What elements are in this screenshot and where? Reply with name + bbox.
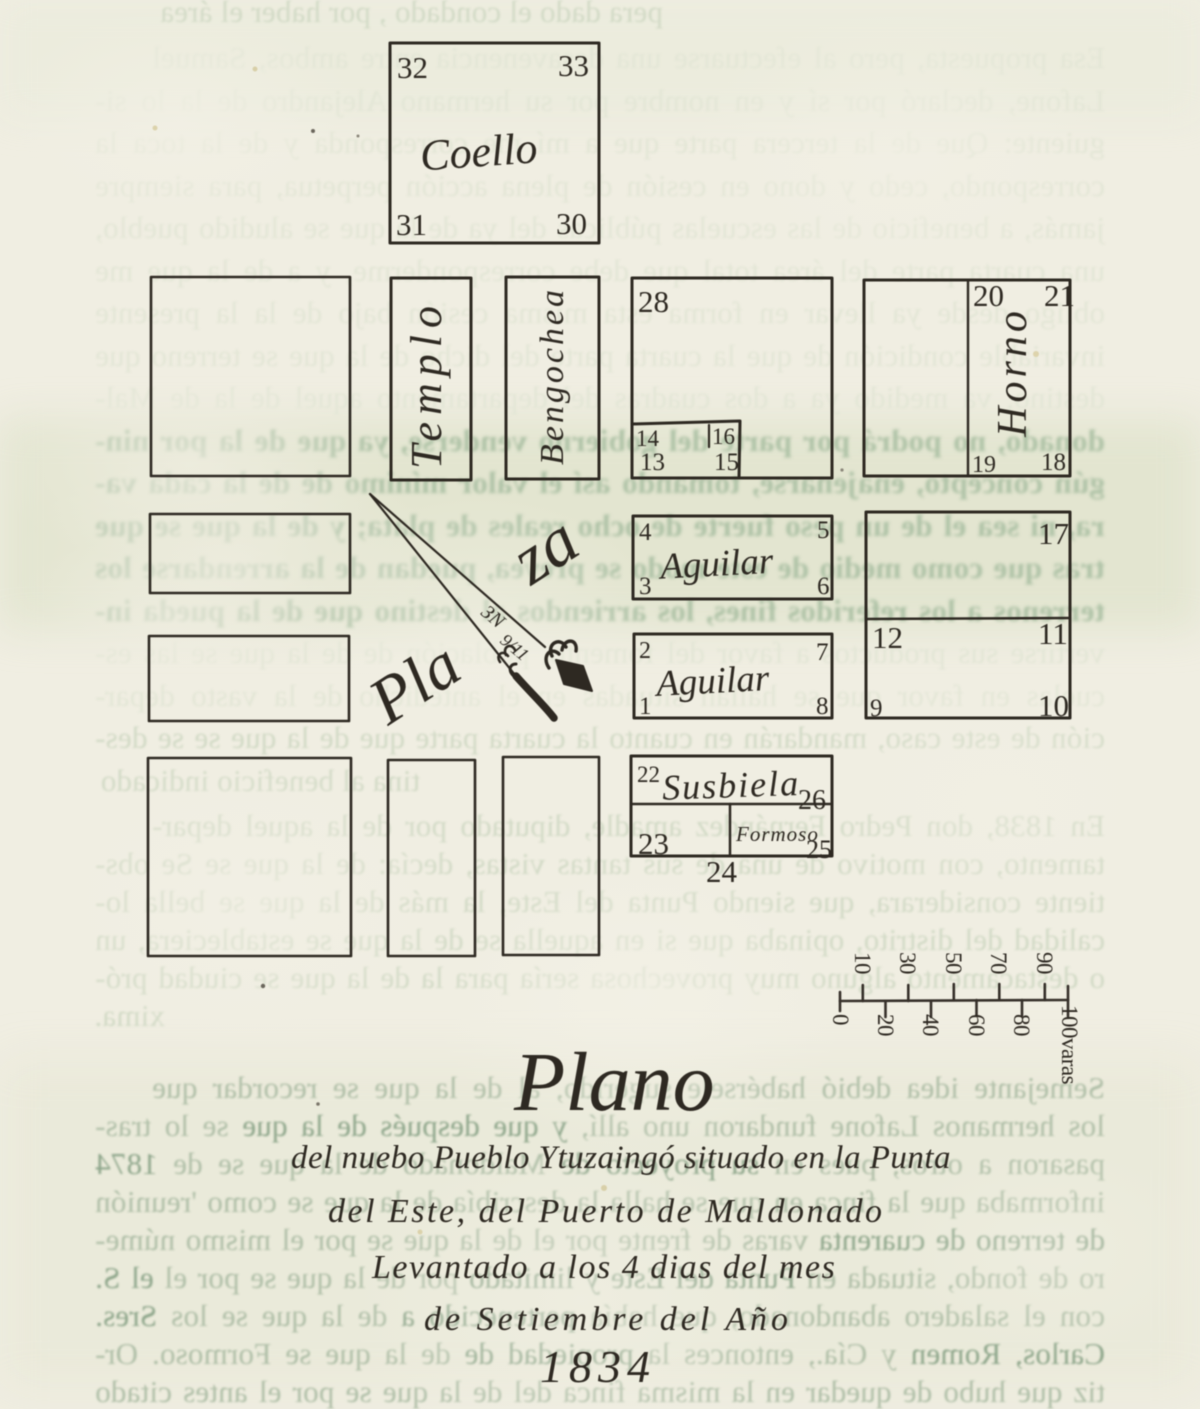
- svg-text:ЗN: ЗN: [477, 601, 510, 634]
- svg-text:Aguilar: Aguilar: [656, 541, 775, 588]
- svg-text:Aguilar: Aguilar: [652, 658, 771, 705]
- svg-text:de Setiembre del Año: de Setiembre del Año: [424, 1301, 792, 1338]
- svg-text:22: 22: [637, 762, 660, 787]
- svg-text:15: 15: [714, 449, 739, 476]
- svg-text:80: 80: [1009, 1014, 1034, 1036]
- svg-text:17: 17: [1038, 516, 1069, 551]
- svg-text:26: 26: [798, 785, 826, 816]
- svg-text:11: 11: [1038, 616, 1068, 651]
- svg-text:1: 1: [639, 693, 652, 720]
- svg-text:10: 10: [1038, 688, 1069, 723]
- svg-text:31: 31: [396, 207, 427, 242]
- svg-text:28: 28: [638, 284, 669, 319]
- svg-text:3: 3: [639, 573, 652, 600]
- svg-text:2: 2: [639, 638, 651, 664]
- svg-text:5: 5: [817, 517, 830, 544]
- svg-text:Horno: Horno: [990, 307, 1036, 438]
- svg-text:19: 19: [972, 452, 996, 478]
- svg-text:4: 4: [639, 519, 652, 546]
- svg-text:Levantado a los 4 dias del mes: Levantado a los 4 dias del mes: [371, 1249, 836, 1286]
- svg-text:del nuebo Pueblo Ytuzaingó sit: del nuebo Pueblo Ytuzaingó situado en la…: [291, 1140, 951, 1176]
- svg-text:Coello: Coello: [418, 123, 538, 180]
- svg-text:50: 50: [941, 952, 966, 974]
- svg-text:40: 40: [918, 1014, 943, 1036]
- svg-text:60: 60: [964, 1014, 989, 1036]
- svg-text:33: 33: [558, 48, 589, 83]
- svg-text:21: 21: [1044, 278, 1075, 313]
- svg-text:13: 13: [640, 449, 665, 476]
- svg-text:0: 0: [828, 1014, 853, 1025]
- svg-text:24: 24: [706, 854, 738, 889]
- svg-text:Bengochea: Bengochea: [534, 287, 571, 465]
- svg-text:Formoso: Formoso: [735, 822, 819, 846]
- svg-text:16: 16: [712, 424, 735, 449]
- svg-text:32: 32: [397, 50, 428, 85]
- svg-text:23: 23: [638, 826, 669, 861]
- svg-text:100varas: 100varas: [1057, 1005, 1082, 1085]
- svg-text:20: 20: [873, 1014, 898, 1036]
- svg-text:Susbiela: Susbiela: [661, 763, 800, 808]
- svg-text:1834: 1834: [540, 1341, 656, 1392]
- svg-text:9: 9: [870, 695, 883, 722]
- svg-text:18: 18: [1041, 449, 1066, 476]
- svg-text:90: 90: [1032, 952, 1057, 974]
- svg-text:12: 12: [872, 620, 903, 655]
- svg-text:70: 70: [986, 952, 1011, 974]
- svg-text:8: 8: [816, 693, 829, 720]
- svg-text:za: za: [497, 501, 592, 600]
- svg-text:Plano: Plano: [513, 1036, 715, 1129]
- svg-text:del Este, del Puerto de Maldon: del Este, del Puerto de Maldonado: [328, 1193, 885, 1230]
- svg-text:30: 30: [556, 206, 587, 241]
- svg-text:Templo: Templo: [402, 299, 451, 469]
- svg-text:10: 10: [850, 952, 875, 974]
- svg-text:30: 30: [895, 952, 920, 974]
- svg-text:Pla: Pla: [356, 627, 473, 739]
- svg-text:14: 14: [636, 426, 660, 451]
- svg-text:6: 6: [817, 573, 830, 600]
- svg-text:7: 7: [816, 639, 829, 666]
